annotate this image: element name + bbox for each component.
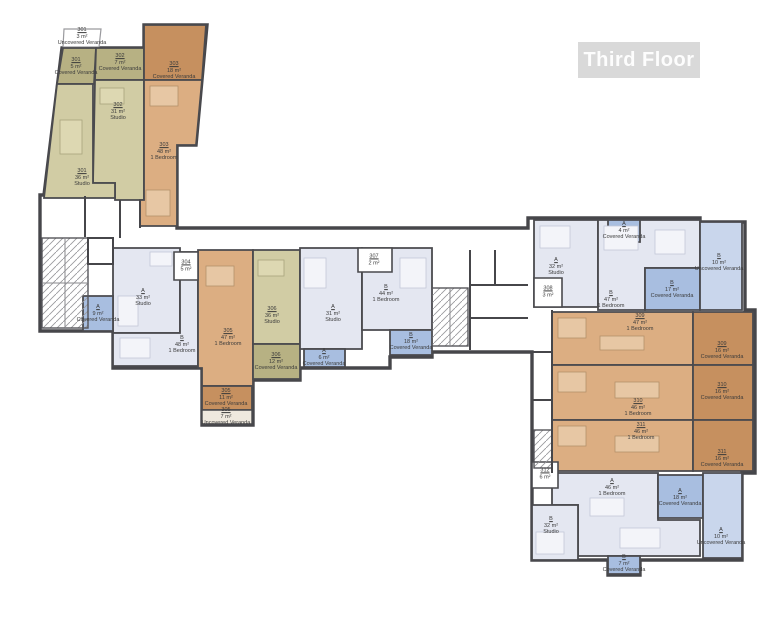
label-307: 3072 m²	[369, 253, 380, 266]
floor-title: Third Floor	[578, 42, 700, 78]
unit-id: 305	[215, 328, 242, 335]
unit-id: 302	[110, 102, 126, 109]
label-311-covered-veranda: 31116 m²Covered Veranda	[701, 449, 744, 469]
unit-type: Studio	[543, 529, 559, 536]
unit-area: 12 m²	[255, 359, 298, 366]
unit-type: 1 Bedroom	[628, 435, 655, 442]
floorplan-page: Third Floor 3013 m²Uncovered Veranda 301…	[0, 0, 768, 618]
unit-id: 301	[58, 27, 107, 34]
label-306-covered-veranda: 30612 m²Covered Veranda	[255, 352, 298, 372]
label-310-covered-veranda: 31016 m²Covered Veranda	[701, 382, 744, 402]
label-302-covered-veranda: 3027 m²Covered Veranda	[99, 53, 142, 73]
unit-id: 303	[151, 142, 178, 149]
label-b48: B48 m²1 Bedroom	[169, 335, 196, 355]
label-b10-uncovered-veranda: B10 m²Uncovered Veranda	[695, 253, 744, 273]
unit-area: 7 m²	[603, 561, 646, 568]
unit-id: A	[603, 221, 646, 228]
unit-id: A	[659, 488, 702, 495]
unit-id: 305	[205, 388, 248, 395]
unit-type: Covered Veranda	[659, 501, 702, 508]
unit-id: B	[543, 516, 559, 523]
label-a33-studio: A33 m²Studio	[135, 288, 151, 308]
unit-id: B	[373, 284, 400, 291]
unit-type: Uncovered Veranda	[202, 420, 251, 427]
unit-type: Covered Veranda	[701, 395, 744, 402]
unit-type: 1 Bedroom	[151, 155, 178, 162]
unit-id: 304	[181, 259, 192, 266]
unit-type: Covered Veranda	[390, 345, 433, 352]
unit-id: 311	[628, 422, 655, 429]
unit-id: A	[77, 304, 120, 311]
unit-type: Studio	[74, 181, 90, 188]
label-a18-covered-veranda: A18 m²Covered Veranda	[659, 488, 702, 508]
unit-area: 3 m²	[543, 292, 554, 299]
unit-id: 306	[264, 306, 280, 313]
unit-id: A	[135, 288, 151, 295]
unit-type: Studio	[325, 317, 341, 324]
unit-id: 309	[701, 341, 744, 348]
label-309-covered-veranda: 30916 m²Covered Veranda	[701, 341, 744, 361]
unit-area: 17 m²	[651, 287, 694, 294]
unit-id: B	[695, 253, 744, 260]
unit-area: 44 m²	[373, 291, 400, 298]
label-312: 3126 m²	[540, 467, 551, 480]
unit-type: Covered Veranda	[701, 354, 744, 361]
unit-id: B	[169, 335, 196, 342]
unit-id: 301	[55, 57, 98, 64]
label-b18-covered-veranda: B18 m²Covered Veranda	[390, 332, 433, 352]
unit-area: 48 m²	[151, 149, 178, 156]
label-305-uncovered-veranda: 3057 m²Uncovered Veranda	[202, 407, 251, 427]
unit-type: Covered Veranda	[651, 293, 694, 300]
unit-area: 16 m²	[701, 456, 744, 463]
unit-type: Studio	[135, 301, 151, 308]
unit-type: 1 Bedroom	[627, 326, 654, 333]
unit-id: 312	[540, 467, 551, 474]
unit-type: 1 Bedroom	[598, 303, 625, 310]
label-b47: B47 m²1 Bedroom	[598, 290, 625, 310]
unit-type: Covered Veranda	[153, 74, 196, 81]
unit-area: 6 m²	[540, 474, 551, 481]
unit-area: 5 m²	[55, 64, 98, 71]
label-301-uncovered-veranda: 3013 m²Uncovered Veranda	[58, 27, 107, 47]
unit-id: B	[603, 554, 646, 561]
label-303: 30348 m²1 Bedroom	[151, 142, 178, 162]
unit-area: 10 m²	[695, 260, 744, 267]
label-304: 3045 m²	[181, 259, 192, 272]
unit-type: 1 Bedroom	[625, 411, 652, 418]
unit-area: 36 m²	[74, 175, 90, 182]
unit-id: A	[303, 348, 346, 355]
unit-area: 48 m²	[169, 342, 196, 349]
unit-area: 46 m²	[599, 485, 626, 492]
label-302: 30231 m²Studio	[110, 102, 126, 122]
unit-area: 16 m²	[701, 389, 744, 396]
unit-area: 16 m²	[701, 348, 744, 355]
unit-id: 311	[701, 449, 744, 456]
unit-type: Covered Veranda	[99, 66, 142, 73]
unit-type: Studio	[548, 270, 564, 277]
unit-area: 11 m²	[205, 395, 248, 402]
unit-area: 31 m²	[110, 109, 126, 116]
unit-type: 1 Bedroom	[169, 348, 196, 355]
label-a46: A46 m²1 Bedroom	[599, 478, 626, 498]
unit-type: Uncovered Veranda	[58, 40, 107, 47]
unit-id: A	[325, 304, 341, 311]
unit-type: Uncovered Veranda	[695, 266, 744, 273]
unit-area: 4 m²	[603, 228, 646, 235]
label-a10-uncovered-veranda: A10 m²Uncovered Veranda	[697, 527, 746, 547]
unit-type: 1 Bedroom	[373, 297, 400, 304]
label-309: 30947 m²1 Bedroom	[627, 313, 654, 333]
label-301-covered-veranda: 3015 m²Covered Veranda	[55, 57, 98, 77]
unit-id: B	[598, 290, 625, 297]
label-a9-covered-veranda: A9 m²Covered Veranda	[77, 304, 120, 324]
unit-area: 18 m²	[659, 495, 702, 502]
unit-area: 46 m²	[625, 405, 652, 412]
unit-type: Covered Veranda	[603, 567, 646, 574]
label-a32-studio: A32 m²Studio	[548, 257, 564, 277]
unit-id: B	[651, 280, 694, 287]
unit-type: 1 Bedroom	[599, 491, 626, 498]
label-a31-studio: A31 m²Studio	[325, 304, 341, 324]
label-305-covered-veranda: 30511 m²Covered Veranda	[205, 388, 248, 408]
label-310: 31046 m²1 Bedroom	[625, 398, 652, 418]
unit-area: 47 m²	[598, 297, 625, 304]
unit-type: 1 Bedroom	[215, 341, 242, 348]
unit-type: Studio	[110, 115, 126, 122]
unit-id: 309	[627, 313, 654, 320]
unit-area: 7 m²	[99, 60, 142, 67]
unit-area: 9 m²	[77, 311, 120, 318]
unit-area: 36 m²	[264, 313, 280, 320]
unit-area: 47 m²	[627, 320, 654, 327]
label-311: 31146 m²1 Bedroom	[628, 422, 655, 442]
unit-area: 6 m²	[303, 355, 346, 362]
unit-type: Covered Veranda	[701, 462, 744, 469]
label-305: 30547 m²1 Bedroom	[215, 328, 242, 348]
unit-type: Covered Veranda	[603, 234, 646, 241]
unit-area: 47 m²	[215, 335, 242, 342]
unit-area: 31 m²	[325, 311, 341, 318]
unit-area: 46 m²	[628, 429, 655, 436]
unit-id: 308	[543, 285, 554, 292]
unit-type: Covered Veranda	[55, 70, 98, 77]
unit-area: 2 m²	[369, 260, 380, 267]
unit-id: A	[548, 257, 564, 264]
unit-id: 301	[74, 168, 90, 175]
unit-id: 306	[255, 352, 298, 359]
unit-type: Covered Veranda	[303, 361, 346, 368]
unit-id: 307	[369, 253, 380, 260]
label-b44: B44 m²1 Bedroom	[373, 284, 400, 304]
label-b17-covered-veranda: B17 m²Covered Veranda	[651, 280, 694, 300]
unit-area: 3 m²	[58, 34, 107, 41]
unit-type: Covered Veranda	[255, 365, 298, 372]
label-b7-covered-veranda: B7 m²Covered Veranda	[603, 554, 646, 574]
unit-area: 32 m²	[543, 523, 559, 530]
unit-id: A	[697, 527, 746, 534]
unit-id: A	[599, 478, 626, 485]
label-301: 30136 m²Studio	[74, 168, 90, 188]
unit-type: Uncovered Veranda	[697, 540, 746, 547]
unit-id: 305	[202, 407, 251, 414]
unit-area: 18 m²	[390, 339, 433, 346]
label-308: 3083 m²	[543, 285, 554, 298]
unit-area: 5 m²	[181, 266, 192, 273]
unit-id: 310	[625, 398, 652, 405]
label-a6-covered-veranda: A6 m²Covered Veranda	[303, 348, 346, 368]
stairwell-east	[534, 430, 552, 468]
unit-area: 10 m²	[697, 534, 746, 541]
label-b32-studio: B32 m²Studio	[543, 516, 559, 536]
unit-id: B	[390, 332, 433, 339]
unit-area: 18 m²	[153, 68, 196, 75]
label-a4-covered-veranda: A4 m²Covered Veranda	[603, 221, 646, 241]
unit-id: 302	[99, 53, 142, 60]
label-306: 30636 m²Studio	[264, 306, 280, 326]
unit-area: 7 m²	[202, 414, 251, 421]
unit-id: 310	[701, 382, 744, 389]
unit-area: 32 m²	[548, 264, 564, 271]
unit-area: 33 m²	[135, 295, 151, 302]
unit-type: Covered Veranda	[77, 317, 120, 324]
label-303-covered-veranda: 30318 m²Covered Veranda	[153, 61, 196, 81]
unit-type: Studio	[264, 319, 280, 326]
unit-id: 303	[153, 61, 196, 68]
